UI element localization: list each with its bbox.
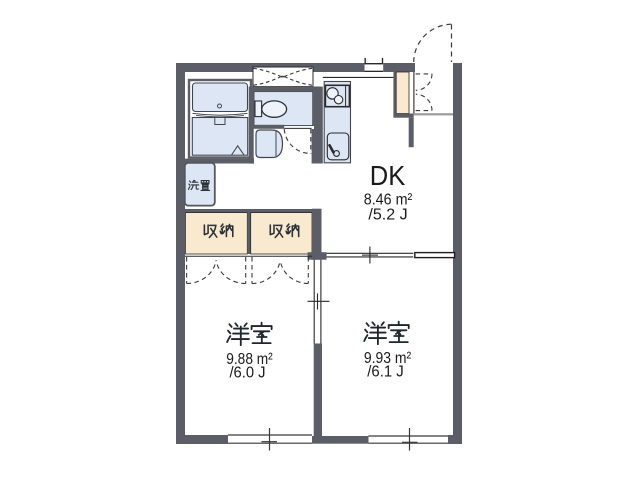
svg-text:/5.2 J: /5.2 J [368, 206, 407, 223]
svg-text:DK: DK [370, 160, 406, 191]
svg-text:/6.1 J: /6.1 J [367, 363, 404, 380]
svg-text:/6.0 J: /6.0 J [229, 364, 265, 381]
